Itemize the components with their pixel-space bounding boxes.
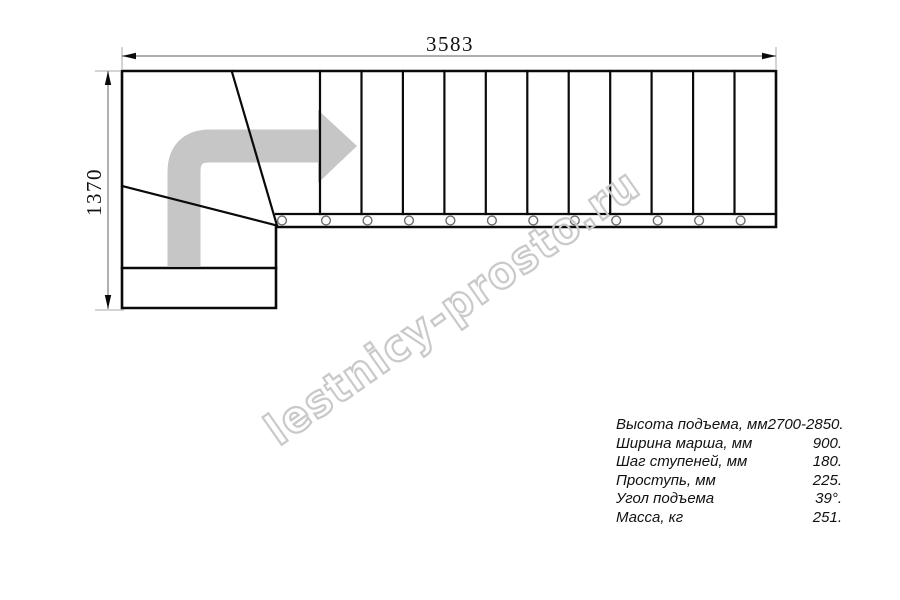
baluster-circle [446,216,455,225]
spec-label: Проступь, мм [616,472,716,491]
baluster-circle [653,216,662,225]
spec-value: 2700-2850. [768,416,844,435]
step-lines [320,71,735,214]
staircase-linework [122,71,776,308]
dim-arrow-bottom [105,295,111,309]
spec-label: Масса, кг [616,509,683,528]
baluster-circle [278,216,287,225]
baluster-circle [405,216,414,225]
dim-arrow-left [122,53,136,59]
direction-arrow-head [318,110,357,183]
spec-label: Угол подъема [616,490,714,509]
spec-row-height: Высота подъема, мм 2700-2850. [616,416,842,435]
dim-height-label: 1370 [82,168,106,216]
direction-arrow [184,110,357,266]
spec-row-step-rise: Шаг ступеней, мм 180. [616,453,842,472]
spec-row-tread: Проступь, мм 225. [616,472,842,491]
spec-row-mass: Масса, кг 251. [616,509,842,528]
dim-arrow-top [105,71,111,85]
spec-value: 900. [813,435,842,454]
dimension-lines [108,56,776,309]
baluster-circle [322,216,331,225]
spec-row-angle: Угол подъема 39°. [616,490,842,509]
spec-table: Высота подъема, мм 2700-2850. Ширина мар… [616,416,842,527]
baluster-circles [278,216,745,225]
spec-value: 180. [813,453,842,472]
baluster-circle [363,216,372,225]
spec-value: 39°. [815,490,842,509]
baluster-circle [488,216,497,225]
spec-label: Высота подъема, мм [616,416,768,435]
spec-value: 225. [813,472,842,491]
spec-value: 251. [813,509,842,528]
staircase-drawing-page: 3583 1370 lestnicy-prosto.ru Высота подъ… [0,0,900,600]
baluster-circle [736,216,745,225]
dim-width-label: 3583 [426,32,474,56]
spec-label: Шаг ступеней, мм [616,453,747,472]
staircase-outline [122,71,776,308]
spec-label: Ширина марша, мм [616,435,752,454]
spec-row-flight-width: Ширина марша, мм 900. [616,435,842,454]
dimension-arrowheads [105,53,776,309]
dim-arrow-right [762,53,776,59]
watermark-text: lestnicy-prosto.ru [256,159,650,456]
baluster-circle [695,216,704,225]
